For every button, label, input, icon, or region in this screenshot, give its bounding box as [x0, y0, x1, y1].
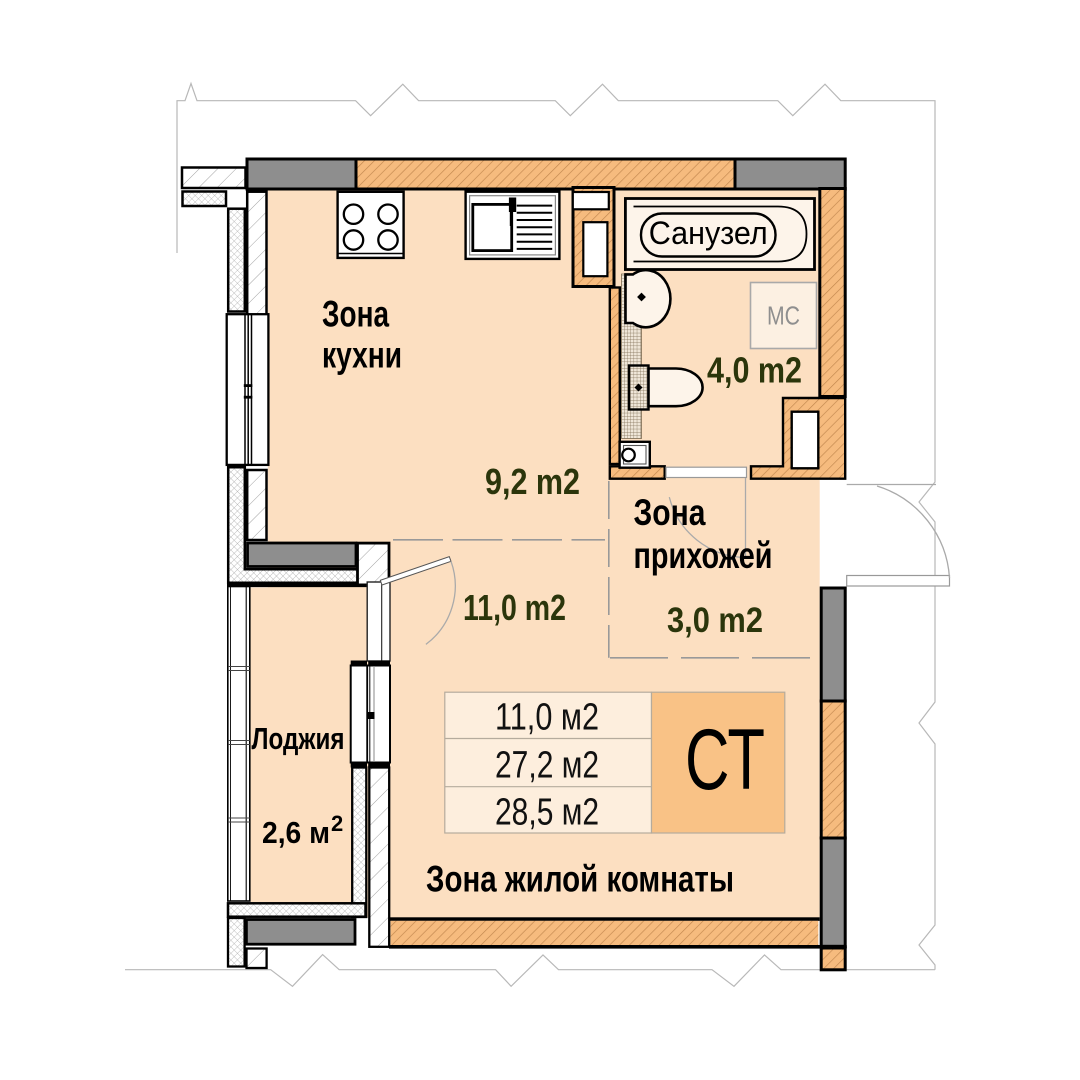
svg-text:11,0 м2: 11,0 м2 [495, 697, 599, 739]
svg-text:кухни: кухни [322, 335, 402, 376]
svg-text:прихожей: прихожей [634, 535, 773, 576]
svg-text:3,0 m2: 3,0 m2 [667, 601, 763, 640]
svg-text:4,0 m2: 4,0 m2 [707, 350, 802, 391]
svg-text:27,2 м2: 27,2 м2 [495, 745, 599, 787]
svg-text:11,0 m2: 11,0 m2 [463, 587, 566, 628]
svg-text:СТ: СТ [685, 712, 765, 808]
svg-text:Зона: Зона [634, 492, 706, 533]
svg-text:Лоджия: Лоджия [252, 721, 345, 756]
svg-text:МС: МС [767, 301, 800, 331]
svg-text:Санузел: Санузел [649, 215, 768, 251]
svg-text:2: 2 [331, 811, 343, 836]
svg-text:Зона: Зона [322, 294, 389, 335]
svg-text:Зона жилой комнаты: Зона жилой комнаты [426, 859, 734, 900]
svg-text:2,6 м: 2,6 м [262, 815, 330, 850]
svg-text:9,2 m2: 9,2 m2 [485, 461, 580, 502]
svg-text:28,5 м2: 28,5 м2 [495, 792, 599, 834]
